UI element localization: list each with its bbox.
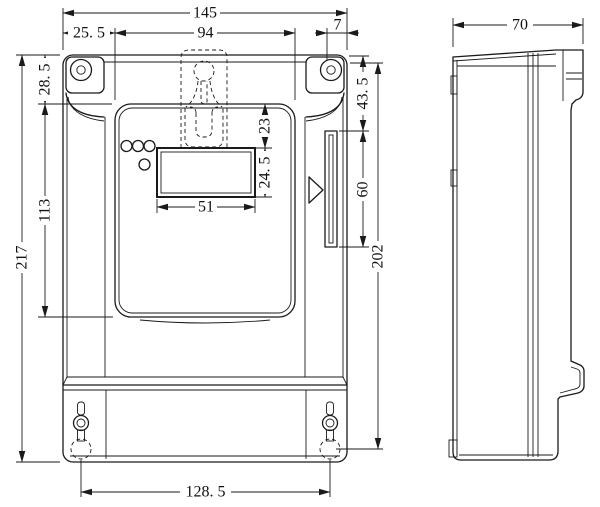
led-2-icon xyxy=(133,141,144,152)
dim-label-overall-height: 217 xyxy=(14,246,31,270)
side-body-back-lines xyxy=(528,53,538,457)
dim-label-top-inset: 28. 5 xyxy=(37,64,54,96)
right-sealing-screw xyxy=(320,402,340,459)
dim-slot-height: 60 xyxy=(339,131,372,247)
dim-slot-offset: 43. 5 xyxy=(349,56,372,131)
top-left-screw-icon xyxy=(71,60,92,81)
dim-label-edge-gap: 7 xyxy=(334,17,342,34)
dim-label-body-height: 202 xyxy=(370,245,387,269)
dim-label-panel-width: 94 xyxy=(198,25,214,42)
dim-label-lcd-offset: 23 xyxy=(257,118,274,134)
led-4-icon xyxy=(139,159,150,170)
top-right-screw-icon xyxy=(321,60,342,81)
dim-label-slot-height: 60 xyxy=(355,182,372,198)
dim-lcd-offset: 23 xyxy=(255,104,274,148)
dim-label-lcd-height: 24. 5 xyxy=(257,157,274,189)
top-left-mounting-ear xyxy=(66,57,104,121)
dim-label-left-inset: 25. 5 xyxy=(73,25,105,42)
dim-screw-spacing: 128. 5 xyxy=(81,460,330,501)
side-view xyxy=(449,50,584,460)
side-mounting-ear xyxy=(563,50,582,101)
dim-label-screw-spacing: 128. 5 xyxy=(186,484,226,501)
led-3-icon xyxy=(144,141,155,152)
junction-band xyxy=(63,377,347,390)
dim-lcd-width: 51 xyxy=(157,199,255,216)
side-lower-hook-inner xyxy=(560,367,580,393)
side-outline xyxy=(453,50,584,460)
hanger-keyhole-hidden xyxy=(181,50,227,148)
side-slot xyxy=(309,131,337,247)
front-panel-skirt xyxy=(140,320,270,323)
drawing-canvas: 145 25. 5 94 7 217 28. 5 113 xyxy=(0,0,600,507)
meter-dimension-drawing: 145 25. 5 94 7 217 28. 5 113 xyxy=(0,0,600,507)
front-view xyxy=(63,50,347,462)
dim-edge-gap: 7 xyxy=(315,17,359,61)
dim-depth: 70 xyxy=(453,17,583,48)
lcd-window xyxy=(157,148,255,197)
arrow-right-icon xyxy=(309,177,323,203)
dim-label-panel-height: 113 xyxy=(37,199,54,222)
terminal-cover xyxy=(70,390,340,459)
dim-overall-height: 217 xyxy=(14,55,61,462)
led-1-icon xyxy=(121,141,132,152)
dim-body-height: 202 xyxy=(336,63,387,449)
side-front-clip-1 xyxy=(451,76,457,94)
dim-label-slot-offset: 43. 5 xyxy=(355,78,372,110)
top-right-mounting-ear xyxy=(306,57,344,121)
dim-label-overall-width: 145 xyxy=(193,5,217,22)
side-top-parallel xyxy=(453,54,556,61)
dim-lcd-height: 24. 5 xyxy=(255,148,274,197)
left-sealing-screw xyxy=(71,402,91,459)
dim-panel-height: 113 xyxy=(37,104,114,317)
dim-label-lcd-width: 51 xyxy=(198,199,214,216)
side-front-clip-2 xyxy=(451,170,457,186)
indicator-leds xyxy=(121,141,155,171)
dim-label-depth: 70 xyxy=(512,17,528,34)
